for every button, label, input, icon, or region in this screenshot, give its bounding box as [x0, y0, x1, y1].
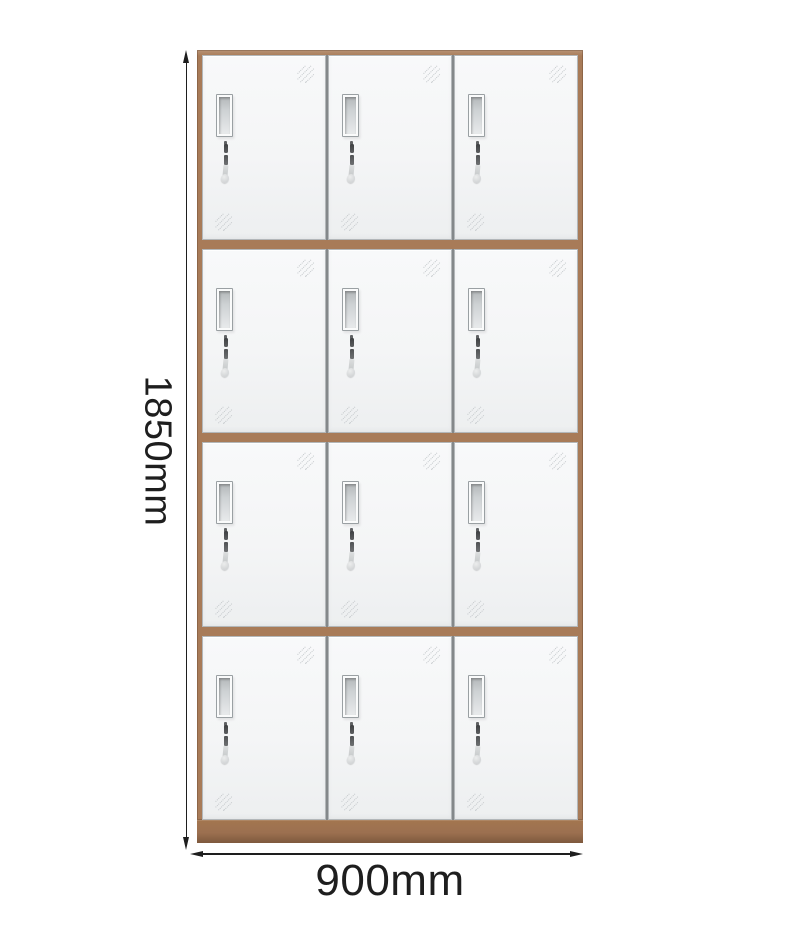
- glare-marks-icon: [414, 444, 448, 478]
- locker-cabinet: [197, 50, 583, 843]
- key-bow: [346, 173, 356, 183]
- vent-slot: [342, 94, 359, 137]
- lock-and-key: [221, 528, 230, 572]
- key-bow: [472, 173, 482, 183]
- cabinet-base: [197, 820, 583, 843]
- lock-body: [350, 736, 354, 746]
- glare-marks-icon: [332, 592, 366, 626]
- width-dimension-line: [196, 853, 577, 855]
- key-bow: [346, 367, 356, 377]
- width-dimension-label: 900mm: [315, 856, 464, 906]
- lock-cylinder: [350, 338, 354, 347]
- lock-and-key: [473, 141, 482, 185]
- lock-and-key: [347, 141, 356, 185]
- locker-door: [202, 55, 326, 240]
- glare-marks-icon: [288, 444, 322, 478]
- glare-marks-icon: [414, 638, 448, 672]
- locker-row: [202, 249, 578, 434]
- key-bow: [220, 754, 230, 764]
- lock-body: [476, 736, 480, 746]
- lock-body: [350, 542, 354, 552]
- key-bow: [472, 754, 482, 764]
- glare-marks-icon: [458, 398, 492, 432]
- vent-slot-recess: [471, 97, 482, 134]
- product-diagram: 1850mm 900mm: [0, 0, 790, 925]
- arrow-right-icon: [570, 851, 583, 857]
- lock-and-key: [473, 335, 482, 379]
- vent-slot: [342, 481, 359, 524]
- lock-cylinder: [224, 144, 228, 153]
- vent-slot: [216, 481, 233, 524]
- vent-slot-recess: [471, 484, 482, 521]
- vent-slot: [468, 675, 485, 718]
- vent-slot-recess: [219, 484, 230, 521]
- lock-body: [224, 736, 228, 746]
- arrow-down-icon: [183, 837, 189, 850]
- lock-body: [350, 349, 354, 359]
- lock-cylinder: [476, 531, 480, 540]
- locker-door: [202, 636, 326, 821]
- lock-cylinder: [476, 725, 480, 734]
- locker-door: [202, 249, 326, 434]
- locker-door: [328, 249, 452, 434]
- glare-marks-icon: [288, 57, 322, 91]
- vent-slot: [216, 675, 233, 718]
- locker-row: [202, 442, 578, 627]
- lock-and-key: [473, 722, 482, 766]
- lock-body: [350, 155, 354, 165]
- key-bow: [220, 560, 230, 570]
- vent-slot: [468, 481, 485, 524]
- locker-door: [328, 636, 452, 821]
- vent-slot-recess: [345, 97, 356, 134]
- locker-row: [202, 636, 578, 821]
- glare-marks-icon: [540, 57, 574, 91]
- locker-door: [454, 636, 578, 821]
- lock-cylinder: [224, 338, 228, 347]
- glare-marks-icon: [540, 251, 574, 285]
- key-bow: [220, 367, 230, 377]
- height-dimension-line: [186, 56, 188, 844]
- key-bow: [220, 173, 230, 183]
- vent-slot-recess: [471, 678, 482, 715]
- vent-slot-recess: [345, 291, 356, 328]
- vent-slot: [468, 94, 485, 137]
- lock-cylinder: [350, 725, 354, 734]
- glare-marks-icon: [540, 638, 574, 672]
- locker-row: [202, 55, 578, 240]
- vent-slot-recess: [219, 97, 230, 134]
- glare-marks-icon: [540, 444, 574, 478]
- lock-cylinder: [476, 338, 480, 347]
- lock-cylinder: [224, 531, 228, 540]
- glare-marks-icon: [332, 205, 366, 239]
- lock-cylinder: [350, 144, 354, 153]
- locker-door: [454, 55, 578, 240]
- locker-door: [454, 249, 578, 434]
- lock-and-key: [347, 722, 356, 766]
- lock-body: [224, 542, 228, 552]
- locker-door: [454, 442, 578, 627]
- vent-slot-recess: [471, 291, 482, 328]
- lock-and-key: [347, 335, 356, 379]
- vent-slot: [342, 288, 359, 331]
- vent-slot: [342, 675, 359, 718]
- vent-slot-recess: [345, 678, 356, 715]
- key-bow: [346, 754, 356, 764]
- locker-door: [202, 442, 326, 627]
- lock-body: [476, 349, 480, 359]
- vent-slot-recess: [219, 678, 230, 715]
- vent-slot-recess: [219, 291, 230, 328]
- lock-body: [476, 155, 480, 165]
- glare-marks-icon: [288, 638, 322, 672]
- lock-and-key: [347, 528, 356, 572]
- glare-marks-icon: [458, 785, 492, 819]
- vent-slot: [468, 288, 485, 331]
- glare-marks-icon: [206, 592, 240, 626]
- glare-marks-icon: [288, 251, 322, 285]
- key-bow: [472, 367, 482, 377]
- lock-body: [224, 349, 228, 359]
- lock-and-key: [221, 141, 230, 185]
- vent-slot: [216, 288, 233, 331]
- key-bow: [346, 560, 356, 570]
- key-bow: [472, 560, 482, 570]
- height-dimension-label: 1850mm: [136, 376, 179, 527]
- door-grid: [197, 50, 583, 820]
- glare-marks-icon: [332, 398, 366, 432]
- locker-door: [328, 442, 452, 627]
- vent-slot: [216, 94, 233, 137]
- glare-marks-icon: [332, 785, 366, 819]
- glare-marks-icon: [414, 57, 448, 91]
- lock-cylinder: [224, 725, 228, 734]
- glare-marks-icon: [458, 205, 492, 239]
- lock-and-key: [473, 528, 482, 572]
- lock-cylinder: [350, 531, 354, 540]
- glare-marks-icon: [206, 398, 240, 432]
- lock-body: [476, 542, 480, 552]
- lock-and-key: [221, 335, 230, 379]
- glare-marks-icon: [414, 251, 448, 285]
- glare-marks-icon: [206, 785, 240, 819]
- vent-slot-recess: [345, 484, 356, 521]
- glare-marks-icon: [458, 592, 492, 626]
- lock-and-key: [221, 722, 230, 766]
- locker-door: [328, 55, 452, 240]
- lock-cylinder: [476, 144, 480, 153]
- lock-body: [224, 155, 228, 165]
- glare-marks-icon: [206, 205, 240, 239]
